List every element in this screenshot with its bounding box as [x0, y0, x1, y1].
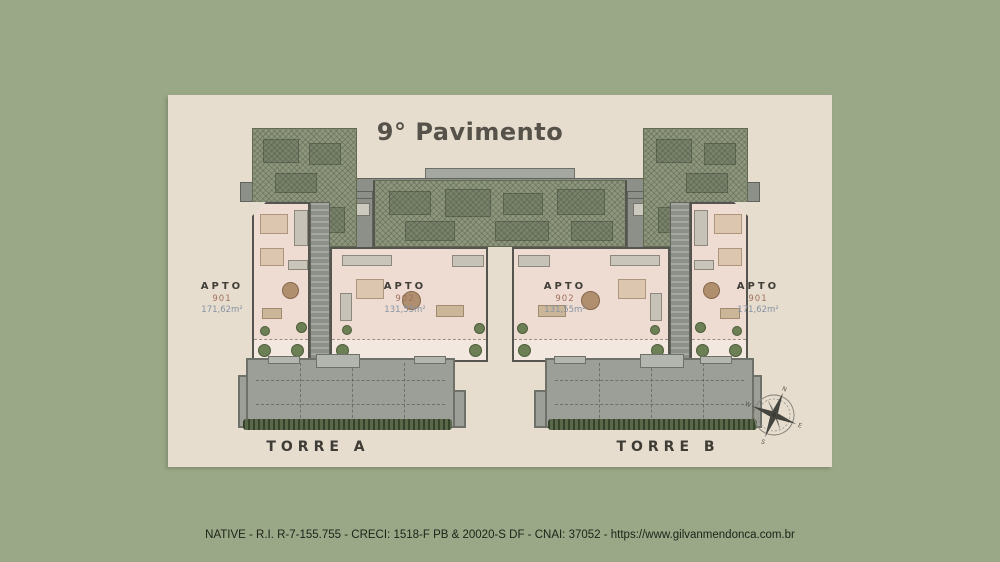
furniture-bed — [260, 214, 288, 234]
tower-a-core — [310, 202, 330, 362]
furniture-cab — [452, 255, 484, 267]
terrace-tab — [414, 356, 446, 364]
furniture-ktc — [610, 255, 660, 266]
compass-east-label: E — [797, 422, 803, 430]
furniture-cab — [694, 210, 708, 246]
furniture-sofa — [436, 305, 464, 317]
tower-b-terrace — [545, 358, 754, 428]
furniture-bed — [714, 214, 742, 234]
furniture-plant — [474, 323, 485, 334]
furniture-cab — [650, 293, 662, 321]
furniture-sofa — [262, 308, 282, 319]
apto-word: APTO — [190, 281, 254, 292]
tower-b-hedge — [548, 419, 757, 430]
furniture-cab — [294, 210, 308, 246]
apto-number: 902 — [373, 294, 437, 304]
furniture-ktc — [342, 255, 392, 266]
apto-area: 171,62m² — [190, 305, 254, 315]
apto-number: 901 — [190, 294, 254, 304]
compass-west-label: W — [744, 401, 752, 410]
balcony-plant — [469, 344, 482, 357]
apto-number: 902 — [533, 294, 597, 304]
slide-background: 9° Pavimento — [0, 0, 1000, 562]
apto-area: 131,55m² — [533, 305, 597, 315]
balcony-plant — [518, 344, 531, 357]
apto-word: APTO — [726, 281, 790, 292]
label-apto-901-tower-b: APTO 901 171,62m² — [726, 281, 790, 315]
furniture-plant — [695, 322, 706, 333]
bridge-pergola — [373, 180, 627, 247]
apto-area: 131,55m² — [373, 305, 437, 315]
apto-area: 171,62m² — [726, 305, 790, 315]
terrace-tab — [700, 356, 732, 364]
compass-north-label: N — [781, 385, 788, 393]
furniture-plant — [296, 322, 307, 333]
furniture-ktc — [694, 260, 714, 270]
terrace-tab — [554, 356, 586, 364]
label-apto-902-tower-a: APTO 902 131,55m² — [373, 281, 437, 315]
apto-word: APTO — [533, 281, 597, 292]
furniture-bed — [260, 248, 284, 266]
tower-a-hedge — [243, 419, 452, 430]
label-apto-901-tower-a: APTO 901 171,62m² — [190, 281, 254, 315]
furniture-plant — [732, 326, 742, 336]
tower-b-name: TORRE B — [588, 439, 748, 455]
compass-south-label: S — [760, 438, 766, 446]
furniture-bed — [618, 279, 646, 299]
tower-b-terrace-step — [534, 390, 547, 428]
label-apto-902-tower-b: APTO 902 131,55m² — [533, 281, 597, 315]
furniture-bed — [718, 248, 742, 266]
terrace-tab — [268, 356, 300, 364]
compass-rose-icon: N E S W — [742, 383, 806, 447]
tower-a-terrace — [246, 358, 455, 428]
legal-footer-text: NATIVE - R.I. R-7-155.755 - CRECI: 1518-… — [0, 529, 1000, 541]
furniture-ktc — [288, 260, 308, 270]
furniture-cab — [518, 255, 550, 267]
furniture-cab — [340, 293, 352, 321]
furniture-plant — [650, 325, 660, 335]
terrace-access — [316, 354, 360, 368]
furniture-tbl — [703, 282, 720, 299]
tower-b-core — [670, 202, 690, 362]
tower-a-terrace-step — [453, 390, 466, 428]
tower-a-name: TORRE A — [238, 439, 398, 455]
apartment-901-tower-a — [252, 202, 310, 362]
furniture-plant — [517, 323, 528, 334]
terrace-access — [640, 354, 684, 368]
page-title: 9° Pavimento — [320, 118, 620, 146]
apto-word: APTO — [373, 281, 437, 292]
apto-number: 901 — [726, 294, 790, 304]
furniture-tbl — [282, 282, 299, 299]
furniture-plant — [342, 325, 352, 335]
furniture-plant — [260, 326, 270, 336]
floorplan-panel: 9° Pavimento — [168, 95, 832, 467]
